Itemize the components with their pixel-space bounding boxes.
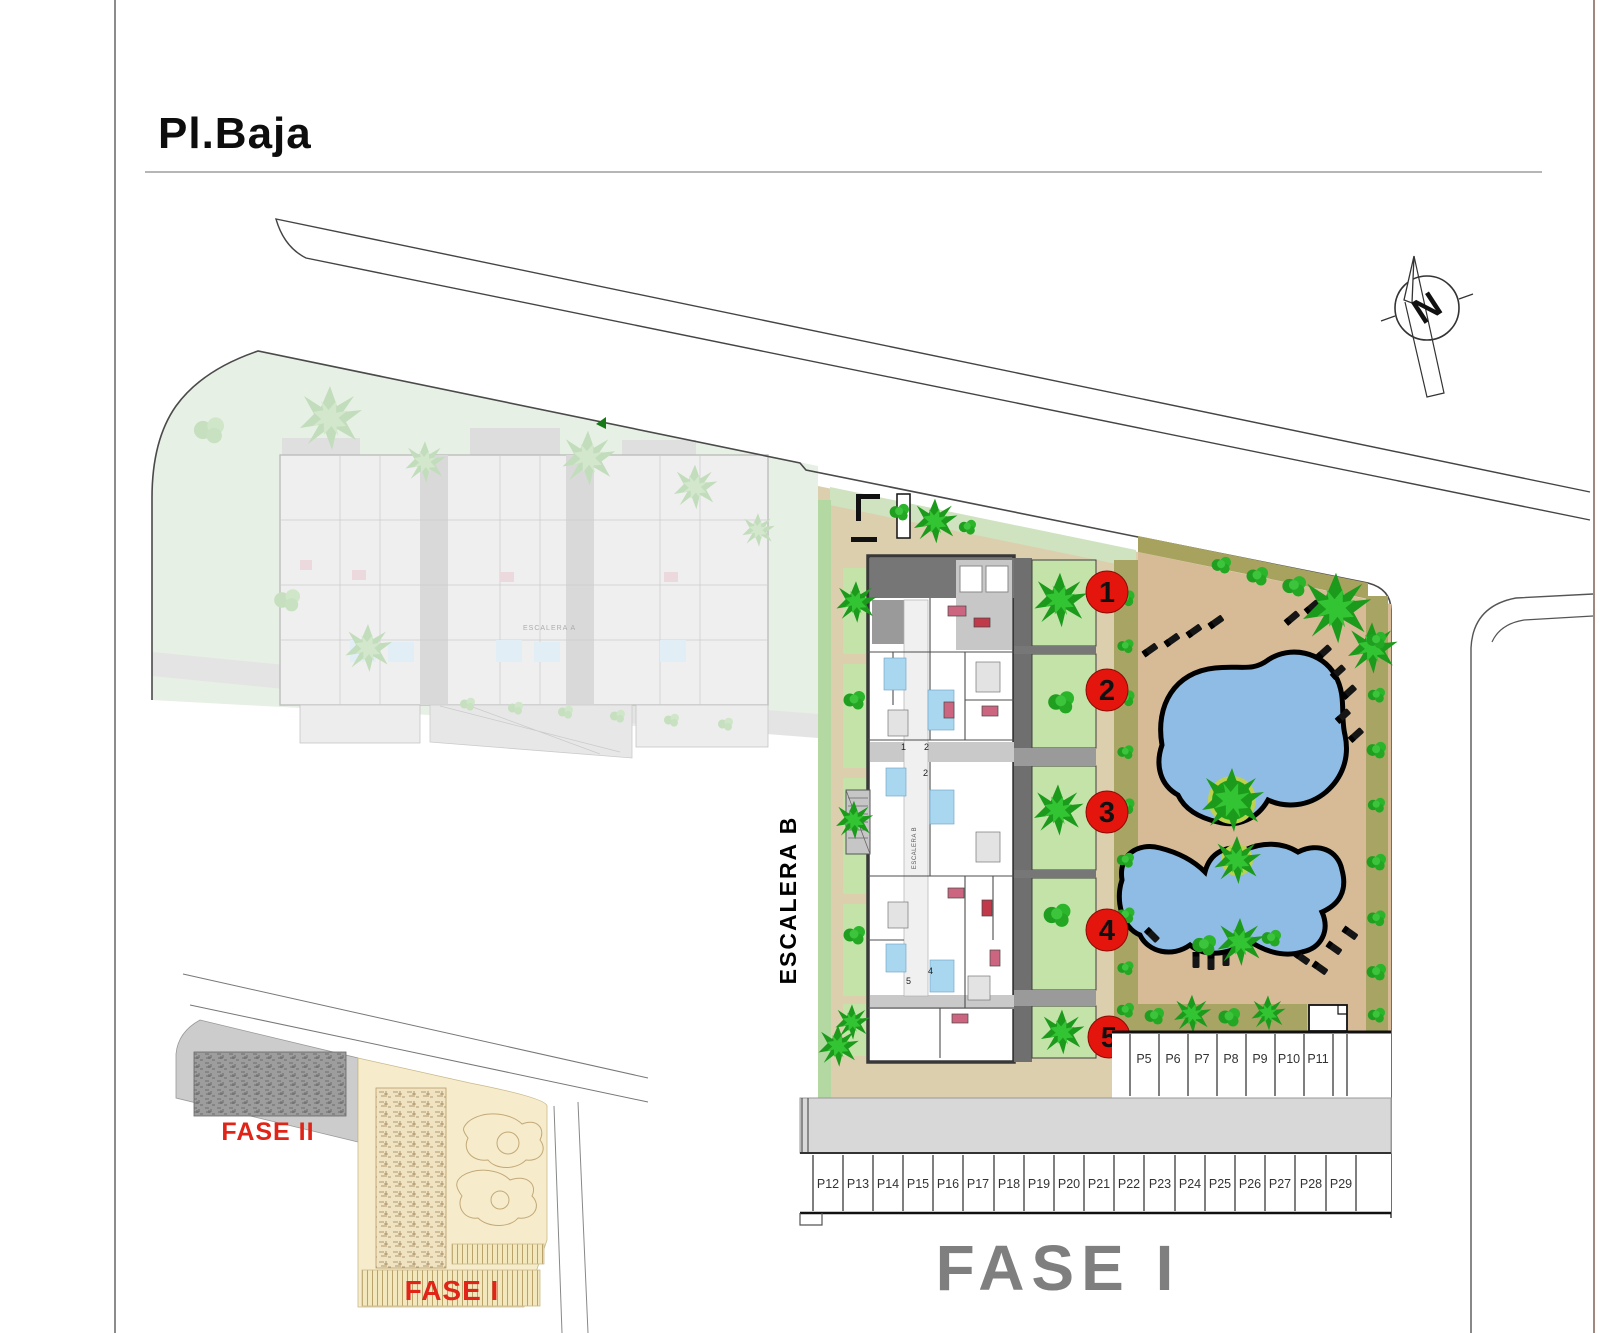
inset-road-right: [554, 1102, 588, 1333]
building-corridor: [904, 600, 928, 996]
phase2-building-slab: [420, 455, 448, 705]
parking-stall: P19: [1028, 1177, 1050, 1191]
inset-hatch-strip: [452, 1244, 544, 1264]
parking-stall: P18: [998, 1177, 1020, 1191]
unit-marker-2: 2: [1086, 669, 1128, 711]
inset-fase2-label: FASE II: [221, 1118, 314, 1146]
parking-stall: P17: [967, 1177, 989, 1191]
parking-stall: P7: [1194, 1052, 1209, 1066]
building-band: [870, 742, 1014, 762]
building-escalera-b: ESCALERA B 1 2 2 4 5: [846, 556, 1014, 1062]
inset-phase1-building: [376, 1088, 446, 1268]
svg-text:2: 2: [924, 742, 929, 752]
road-right-outer: [1471, 594, 1593, 1333]
road-right-inner: [1492, 616, 1593, 642]
site-plan: Pl.Baja ESCALERA A: [0, 0, 1600, 1333]
roof-room: [960, 566, 982, 592]
svg-text:1: 1: [901, 742, 906, 752]
phase2-stair-wedge: [430, 705, 632, 758]
parking-stall: P23: [1149, 1177, 1171, 1191]
parking-stall: P22: [1118, 1177, 1140, 1191]
parking-stall: P6: [1165, 1052, 1180, 1066]
site-plan-canvas: Pl.Baja ESCALERA A: [0, 0, 1600, 1333]
parking-stall: P21: [1088, 1177, 1110, 1191]
parking-stall: P14: [877, 1177, 899, 1191]
unit-marker-3: 3: [1086, 791, 1128, 833]
parking-stall: P9: [1252, 1052, 1267, 1066]
phase2-building-slab: [566, 455, 594, 705]
building-roof: [872, 600, 904, 644]
north-compass: N: [1381, 256, 1473, 397]
parking-stall: P24: [1179, 1177, 1201, 1191]
building-band: [870, 995, 1014, 1009]
parking-stall: P5: [1136, 1052, 1151, 1066]
parking-stall: P15: [907, 1177, 929, 1191]
terrace-band: [1014, 558, 1032, 1062]
svg-text:2: 2: [1099, 675, 1115, 707]
parking-stall: P27: [1269, 1177, 1291, 1191]
phase1-left-green-strip: [818, 500, 831, 1098]
roof-room: [986, 566, 1008, 592]
inset-phase2-building: [194, 1052, 346, 1116]
parking-stall: P28: [1300, 1177, 1322, 1191]
phase2-wing: [300, 705, 420, 743]
building-stair-label: ESCALERA B: [912, 827, 918, 869]
parking-stall: P25: [1209, 1177, 1231, 1191]
svg-text:3: 3: [1099, 797, 1115, 829]
parking-bottom-step: [800, 1213, 822, 1225]
inset-key-map: FASE II FASE I: [176, 974, 648, 1333]
phase2-faded-area: ESCALERA A: [152, 351, 818, 758]
pool-house: [1309, 1005, 1347, 1031]
parking-stall: P26: [1239, 1177, 1261, 1191]
parking-stall: P20: [1058, 1177, 1080, 1191]
parking-stall: P29: [1330, 1177, 1352, 1191]
escalera-b-label: ESCALERA B: [775, 816, 801, 985]
svg-text:1: 1: [1099, 577, 1115, 609]
parking-stall: P16: [937, 1177, 959, 1191]
page-title: Pl.Baja: [158, 109, 312, 158]
svg-text:5: 5: [906, 976, 911, 986]
svg-text:2: 2: [923, 768, 928, 778]
parking-stall: P10: [1278, 1052, 1300, 1066]
phase2-roof: [470, 428, 560, 458]
phase1-area: ESCALERA B 1 2 2 4 5: [775, 486, 1398, 1098]
parking-row-bottom: P12 P13 P14 P15 P16 P17 P18 P19 P20 P21 …: [800, 1153, 1391, 1225]
svg-text:4: 4: [928, 966, 933, 976]
unit-marker-4: 4: [1086, 909, 1128, 951]
parking-stall: P12: [817, 1177, 839, 1191]
phase1-big-label: FASE I: [936, 1232, 1181, 1304]
unit-marker-1: 1: [1086, 571, 1128, 613]
inset-fase1-label: FASE I: [405, 1275, 500, 1306]
parking-row-top: P5 P6 P7 P8 P9 P10 P11: [1112, 1032, 1391, 1098]
parking-stall: P13: [847, 1177, 869, 1191]
parking-stall: P11: [1307, 1052, 1328, 1066]
parking-stall: P8: [1223, 1052, 1238, 1066]
phase2-wing: [636, 705, 768, 747]
svg-text:4: 4: [1099, 915, 1115, 947]
phase2-stair-label: ESCALERA A: [523, 625, 576, 632]
